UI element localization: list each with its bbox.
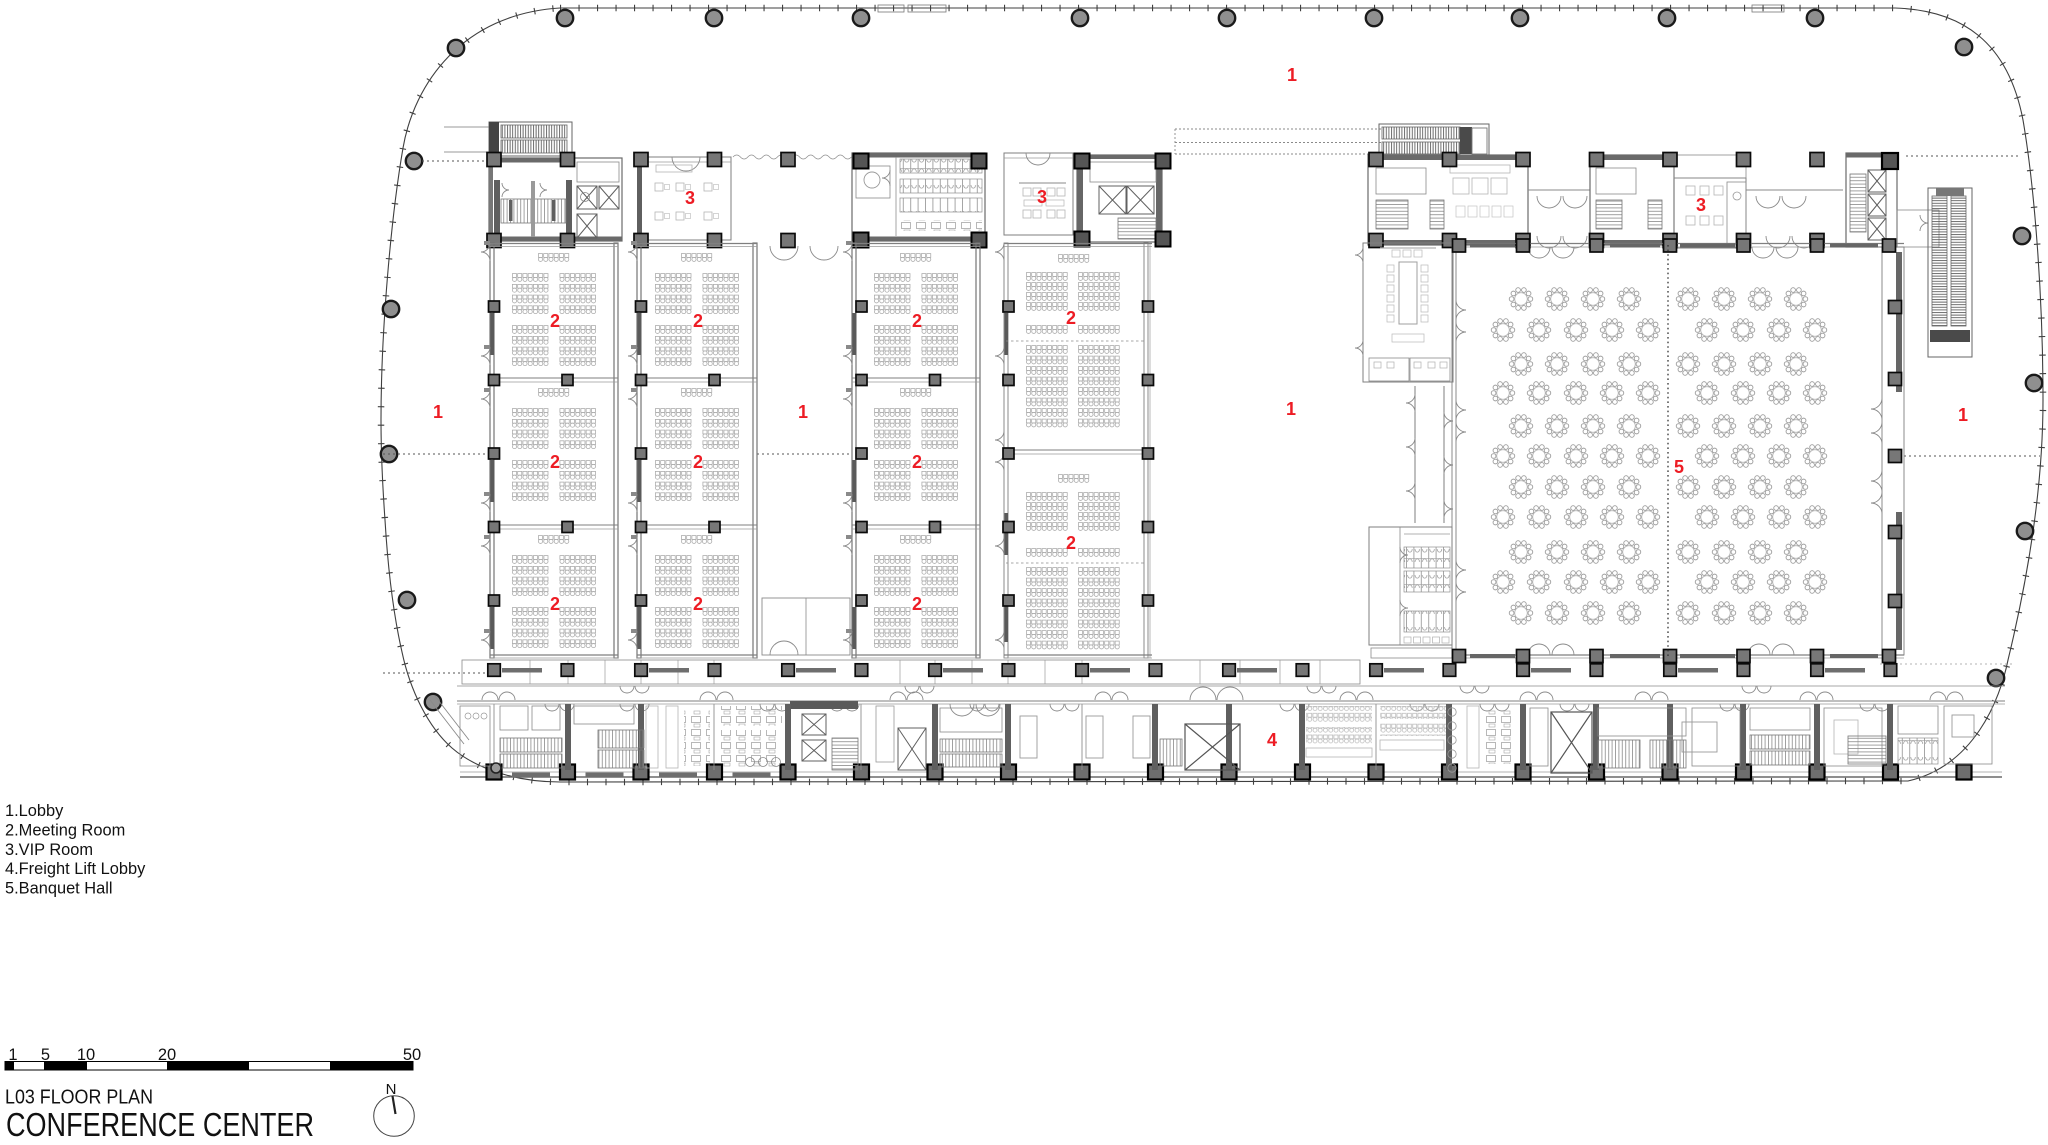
svg-text:4.Freight Lift Lobby: 4.Freight Lift Lobby [5, 860, 146, 878]
svg-text:2: 2 [912, 311, 922, 331]
svg-text:10: 10 [77, 1046, 95, 1064]
svg-text:2: 2 [693, 311, 703, 331]
svg-text:N: N [386, 1081, 397, 1098]
svg-text:2: 2 [550, 311, 560, 331]
svg-text:2: 2 [912, 594, 922, 614]
svg-text:2: 2 [912, 452, 922, 472]
svg-text:1: 1 [798, 402, 808, 422]
svg-text:3: 3 [1037, 187, 1047, 207]
svg-text:1.Lobby: 1.Lobby [5, 802, 64, 820]
svg-text:2: 2 [550, 452, 560, 472]
svg-text:2: 2 [693, 594, 703, 614]
svg-text:L03 FLOOR PLAN: L03 FLOOR PLAN [5, 1087, 153, 1109]
svg-text:1: 1 [8, 1046, 17, 1064]
svg-text:4: 4 [1267, 730, 1277, 750]
svg-text:5.Banquet Hall: 5.Banquet Hall [5, 880, 113, 898]
svg-text:1: 1 [433, 402, 443, 422]
svg-text:2.Meeting Room: 2.Meeting Room [5, 821, 125, 839]
svg-text:CONFERENCE CENTER: CONFERENCE CENTER [6, 1107, 314, 1144]
svg-text:2: 2 [1066, 308, 1076, 328]
svg-text:2: 2 [550, 594, 560, 614]
svg-text:2: 2 [1066, 533, 1076, 553]
svg-text:5: 5 [1674, 457, 1684, 477]
svg-text:20: 20 [158, 1046, 176, 1064]
svg-text:3: 3 [685, 188, 695, 208]
svg-text:50: 50 [403, 1046, 421, 1064]
svg-text:3: 3 [1696, 195, 1706, 215]
svg-text:5: 5 [41, 1046, 50, 1064]
svg-text:3.VIP Room: 3.VIP Room [5, 841, 93, 859]
svg-text:2: 2 [693, 452, 703, 472]
svg-text:1: 1 [1958, 405, 1968, 425]
svg-text:1: 1 [1287, 65, 1297, 85]
svg-text:1: 1 [1286, 399, 1296, 419]
